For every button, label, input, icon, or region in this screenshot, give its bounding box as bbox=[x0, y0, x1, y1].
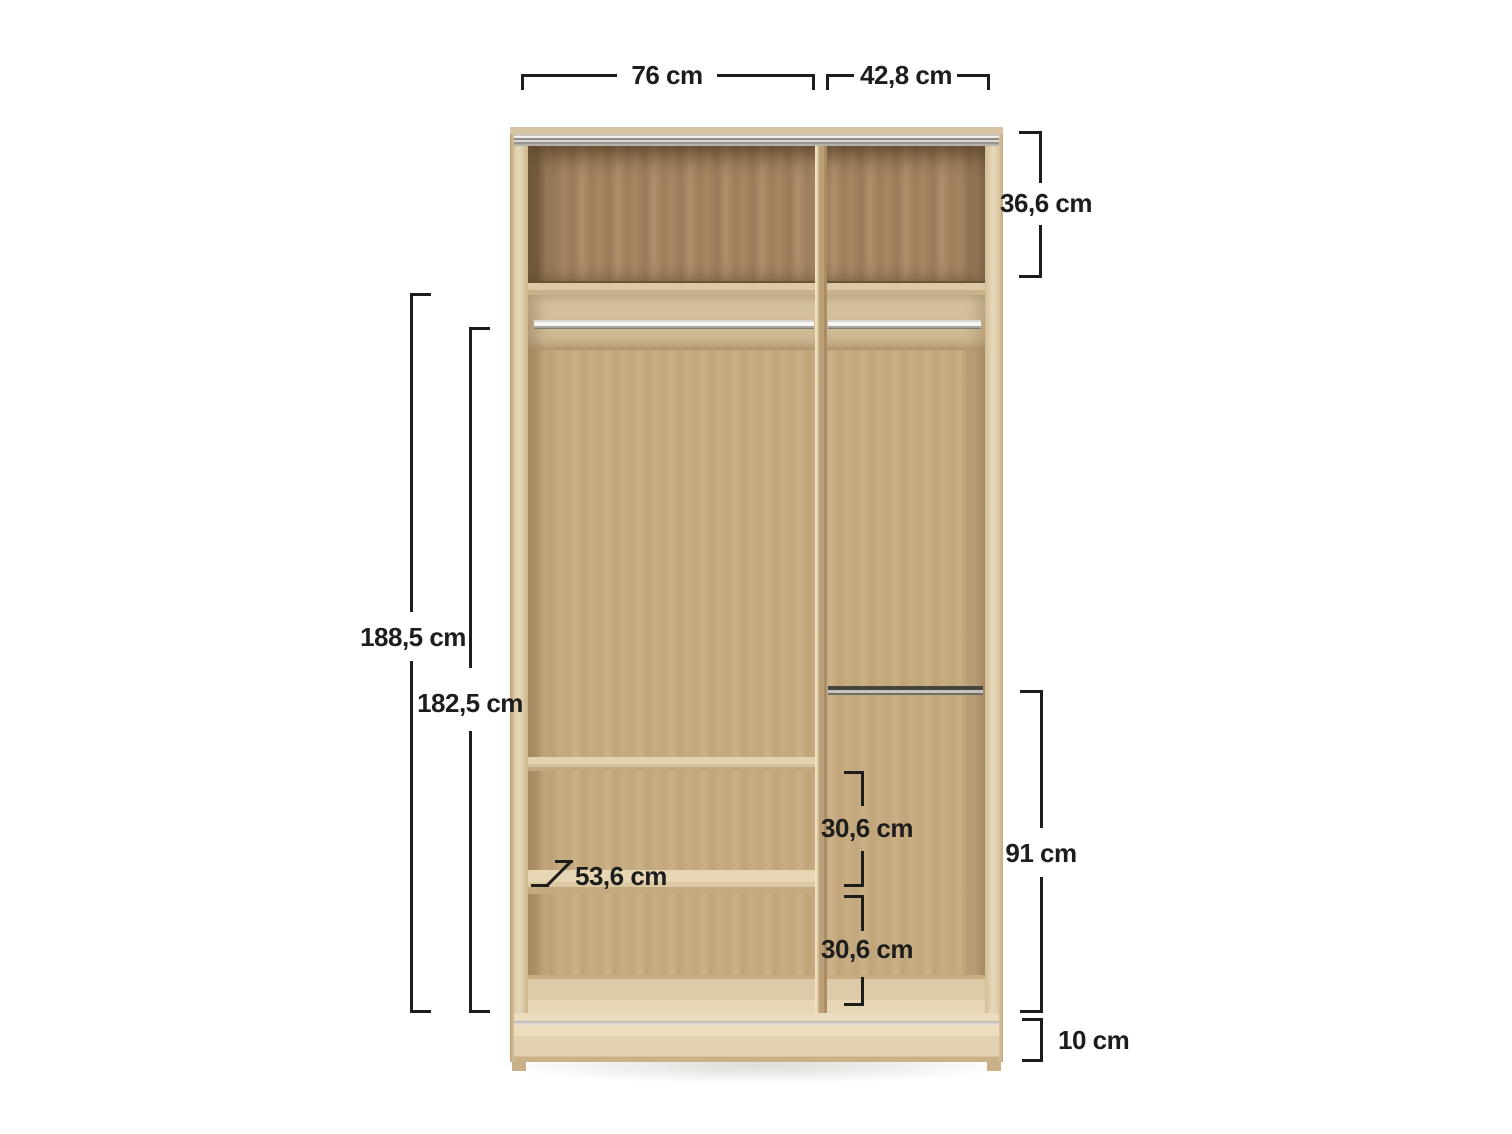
base-front-edge bbox=[514, 1013, 999, 1021]
dim-tick bbox=[844, 771, 864, 774]
dim-line bbox=[1039, 225, 1042, 278]
dim-top-section-label: 36,6 cm bbox=[1000, 190, 1092, 216]
dim-tick bbox=[987, 74, 990, 90]
hanging-rail-left bbox=[534, 320, 814, 329]
hanging-rail-right bbox=[828, 320, 981, 329]
dim-tick bbox=[469, 1010, 490, 1013]
dim-line bbox=[861, 851, 864, 887]
shelf-lower bbox=[528, 870, 815, 894]
bottom-panel bbox=[528, 975, 985, 1013]
left-side-wall bbox=[510, 127, 528, 1062]
dim-gap-lower-label: 30,6 cm bbox=[821, 936, 913, 962]
wardrobe bbox=[510, 127, 1003, 1062]
dim-height-outer-label: 188,5 cm bbox=[360, 624, 466, 650]
vertical-divider bbox=[815, 146, 827, 1013]
dim-tick bbox=[410, 1010, 431, 1013]
dim-line bbox=[717, 74, 815, 77]
dim-line bbox=[861, 895, 864, 931]
dim-tick bbox=[1022, 1059, 1041, 1062]
top-shelf bbox=[528, 281, 985, 295]
dim-tick bbox=[521, 74, 524, 90]
wardrobe-dimension-diagram: 76 cm 42,8 cm 36,6 cm 188,5 cm 182,5 cm bbox=[0, 0, 1512, 1134]
dim-line bbox=[1039, 131, 1042, 183]
foot-left bbox=[512, 1062, 526, 1071]
dim-tick bbox=[1022, 1018, 1041, 1021]
sliding-door-track bbox=[514, 134, 999, 146]
dim-line bbox=[826, 74, 854, 77]
dim-tick bbox=[1019, 131, 1040, 134]
dim-line bbox=[521, 74, 617, 77]
dim-tick bbox=[826, 74, 829, 90]
dim-plinth-label: 10 cm bbox=[1058, 1027, 1129, 1053]
right-side-wall bbox=[985, 127, 1003, 1062]
dim-tick bbox=[469, 327, 490, 330]
dim-line bbox=[861, 977, 864, 1006]
dim-shelf-depth-label: 53,6 cm bbox=[575, 863, 667, 889]
dim-width-left-label: 76 cm bbox=[631, 62, 702, 88]
dim-line bbox=[469, 731, 472, 1013]
hanging-rail-right-lower bbox=[828, 686, 983, 695]
dim-line bbox=[957, 74, 990, 77]
dim-tick bbox=[555, 860, 573, 863]
dim-line bbox=[410, 661, 413, 1013]
dim-line bbox=[410, 293, 413, 612]
foot-right bbox=[987, 1062, 1001, 1071]
dim-tick bbox=[1020, 690, 1041, 693]
dim-tick bbox=[410, 293, 431, 296]
dim-tick bbox=[531, 884, 549, 887]
plinth bbox=[514, 1025, 999, 1062]
dim-width-right-label: 42,8 cm bbox=[860, 62, 952, 88]
dim-line bbox=[1040, 877, 1043, 1013]
dim-gap-upper-label: 30,6 cm bbox=[821, 815, 913, 841]
dim-right-section-label: 91 cm bbox=[1005, 840, 1076, 866]
dim-tick bbox=[1020, 1010, 1041, 1013]
dim-line bbox=[469, 327, 472, 668]
dim-tick bbox=[844, 1003, 864, 1006]
top-panel-edge bbox=[510, 127, 1003, 134]
dim-line bbox=[1040, 690, 1043, 828]
dim-line bbox=[1040, 1018, 1043, 1062]
top-compartment bbox=[528, 146, 985, 281]
dim-tick bbox=[844, 884, 864, 887]
dim-height-inner-label: 182,5 cm bbox=[417, 690, 523, 716]
dim-tick bbox=[844, 895, 864, 898]
dim-tick bbox=[1019, 275, 1040, 278]
shelf-upper bbox=[528, 757, 815, 771]
dim-tick bbox=[812, 74, 815, 90]
dim-line bbox=[861, 771, 864, 806]
